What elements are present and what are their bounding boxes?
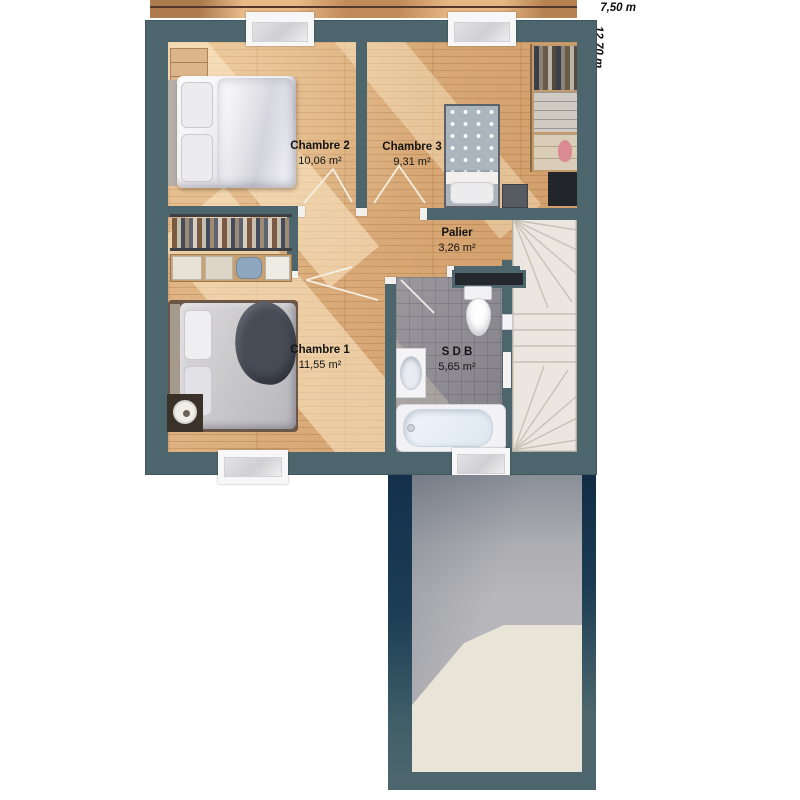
- staircase-treads: [512, 218, 577, 452]
- window-glass: [454, 22, 510, 42]
- storage-basket: [236, 257, 262, 279]
- garage-sun-patch: [412, 475, 582, 772]
- sdb-bin: [502, 314, 513, 330]
- storage-box: [265, 256, 290, 280]
- dressing-hanging-clothes: [172, 218, 290, 248]
- floor-plan: 7,50 m 12,70 m: [0, 0, 800, 800]
- chambre2-bed-headboard: [168, 80, 177, 186]
- chambre2-pillow: [181, 134, 213, 182]
- stairs-shelf: [503, 352, 511, 388]
- wall-sdb-chambre1: [385, 277, 396, 452]
- window-glass: [252, 22, 308, 42]
- storage-box: [172, 256, 202, 280]
- chambre1-pillow: [184, 310, 212, 360]
- dimension-width-label: 7,50 m: [556, 2, 636, 14]
- chambre3-nightstand: [502, 184, 528, 208]
- dressing-rack-rail: [170, 248, 292, 251]
- building-upper-floor: [145, 20, 597, 475]
- door-jamb: [298, 206, 305, 217]
- window-chambre2: [246, 12, 314, 46]
- chambre2-pillow: [181, 82, 213, 128]
- sink-basin: [400, 356, 422, 390]
- window-glass: [457, 454, 505, 474]
- garage-wall-bottom: [388, 772, 596, 790]
- window-glass: [224, 457, 282, 477]
- window-chambre3: [448, 12, 516, 46]
- chambre3-tv-unit: [548, 172, 577, 206]
- dressing-rack-rail: [170, 214, 292, 217]
- wardrobe-linen-shelf: [534, 92, 577, 132]
- garage-wall-left: [388, 475, 412, 790]
- door-jamb: [385, 277, 396, 284]
- wall-chambre3-palier: [420, 208, 577, 220]
- bathtub-faucet: [407, 424, 415, 432]
- chambre3-pillow: [450, 182, 494, 204]
- door-jamb: [356, 208, 367, 216]
- chambre2-duvet-fold: [217, 78, 293, 186]
- staircase: [512, 218, 577, 452]
- wall-chambre2-chambre3: [356, 42, 367, 208]
- wardrobe-clothes-rail: [534, 46, 577, 90]
- garage-wall-right: [582, 475, 596, 790]
- bathtub-interior: [403, 409, 493, 447]
- chambre1-table-center: [183, 410, 190, 417]
- garage-extension: [388, 475, 596, 790]
- wardrobe-pink-item: [558, 140, 572, 162]
- roof-edge-line: [150, 6, 577, 8]
- storage-box: [205, 256, 233, 280]
- door-jamb: [420, 208, 427, 220]
- window-chambre1: [218, 450, 288, 484]
- garage-floor: [412, 475, 582, 772]
- chambre3-wardrobe: [530, 44, 577, 172]
